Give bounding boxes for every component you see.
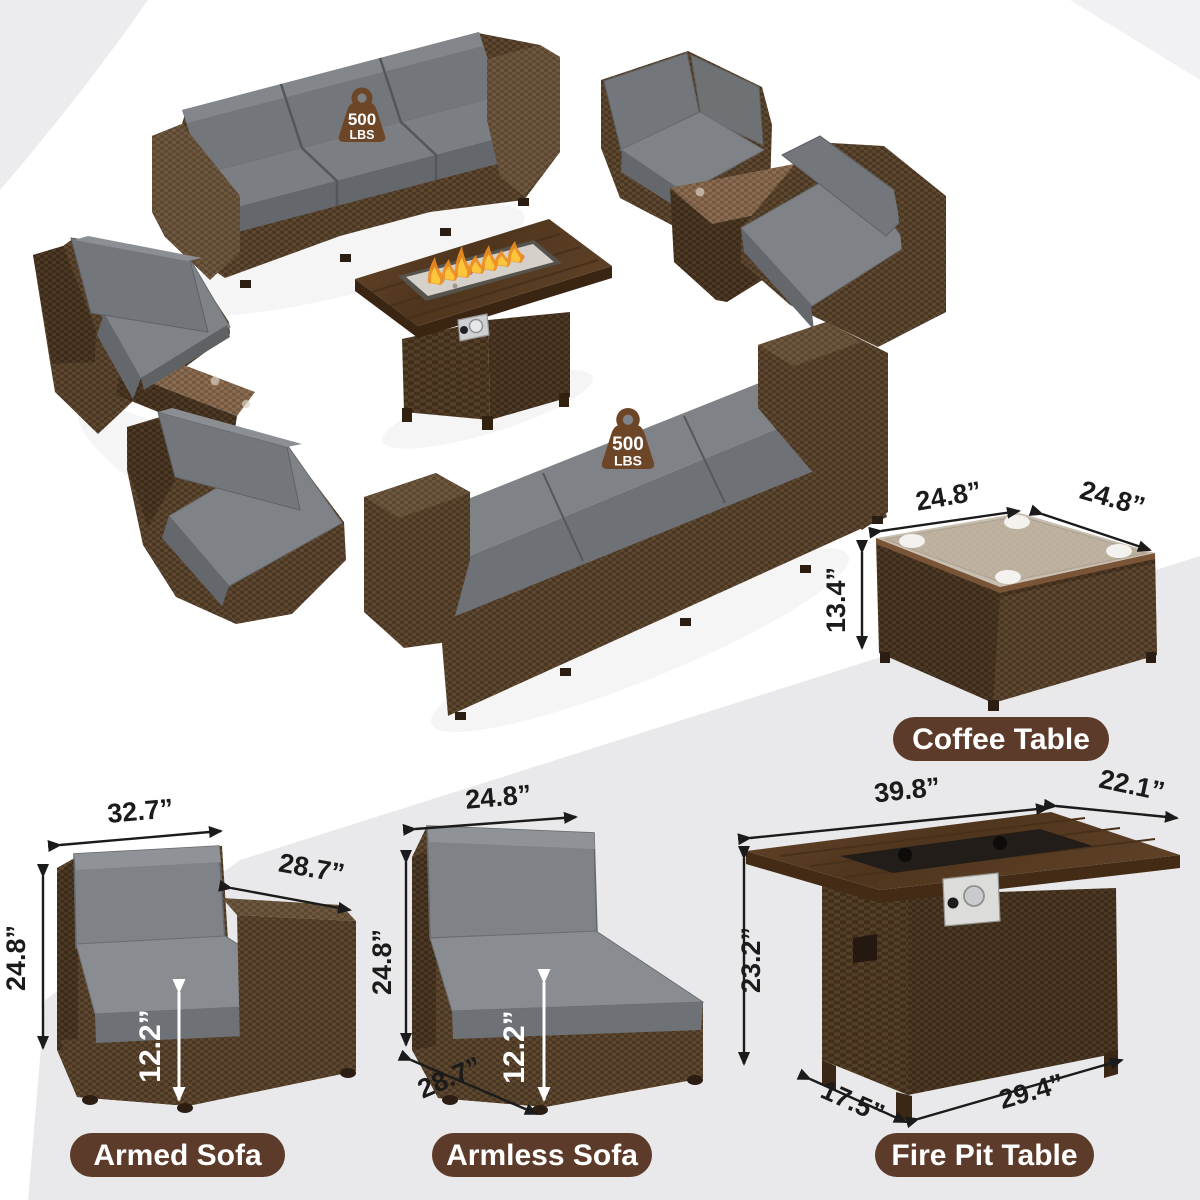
svg-text:32.7”: 32.7” (106, 793, 174, 829)
svg-text:Fire Pit Table: Fire Pit Table (891, 1139, 1077, 1172)
svg-text:13.4”: 13.4” (821, 567, 851, 633)
svg-text:12.2”: 12.2” (498, 1010, 531, 1083)
svg-text:24.8”: 24.8” (464, 779, 532, 815)
svg-text:LBS: LBS (350, 128, 375, 142)
svg-text:LBS: LBS (614, 453, 642, 469)
svg-text:Armless Sofa: Armless Sofa (446, 1139, 638, 1172)
svg-text:24.8”: 24.8” (367, 929, 397, 995)
svg-text:24.8”: 24.8” (1, 925, 31, 991)
svg-text:Armed Sofa: Armed Sofa (93, 1139, 262, 1172)
svg-text:23.2”: 23.2” (736, 927, 766, 993)
svg-text:Coffee Table: Coffee Table (912, 723, 1090, 756)
svg-text:12.2”: 12.2” (134, 1009, 167, 1082)
svg-text:500: 500 (348, 110, 376, 129)
